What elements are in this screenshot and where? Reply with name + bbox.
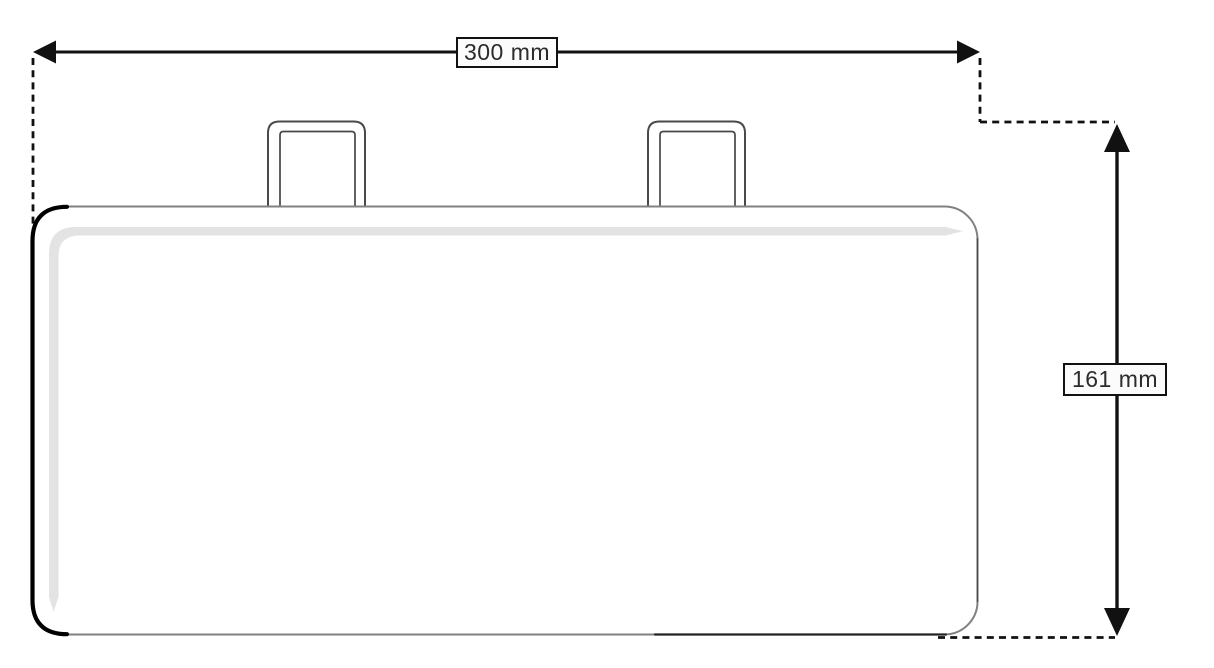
mounting-tab-right [648,122,745,211]
arrowhead-left-icon [33,41,56,64]
arrowhead-up-icon [1104,124,1130,152]
tab-left-inner-loop [280,132,355,211]
technical-drawing-canvas: 300 mm 161 mm [0,0,1214,668]
case-outline [33,207,978,635]
mounting-tab-left [268,122,365,211]
case-body [33,207,978,635]
arrowhead-right-icon [957,41,980,64]
arrowhead-down-icon [1104,608,1130,636]
height-dimension-label: 161 mm [1063,363,1167,396]
width-dimension-label: 300 mm [456,37,558,68]
width-dimension [33,41,1115,227]
drawing-svg [0,0,1214,668]
tab-right-inner-loop [660,132,735,211]
